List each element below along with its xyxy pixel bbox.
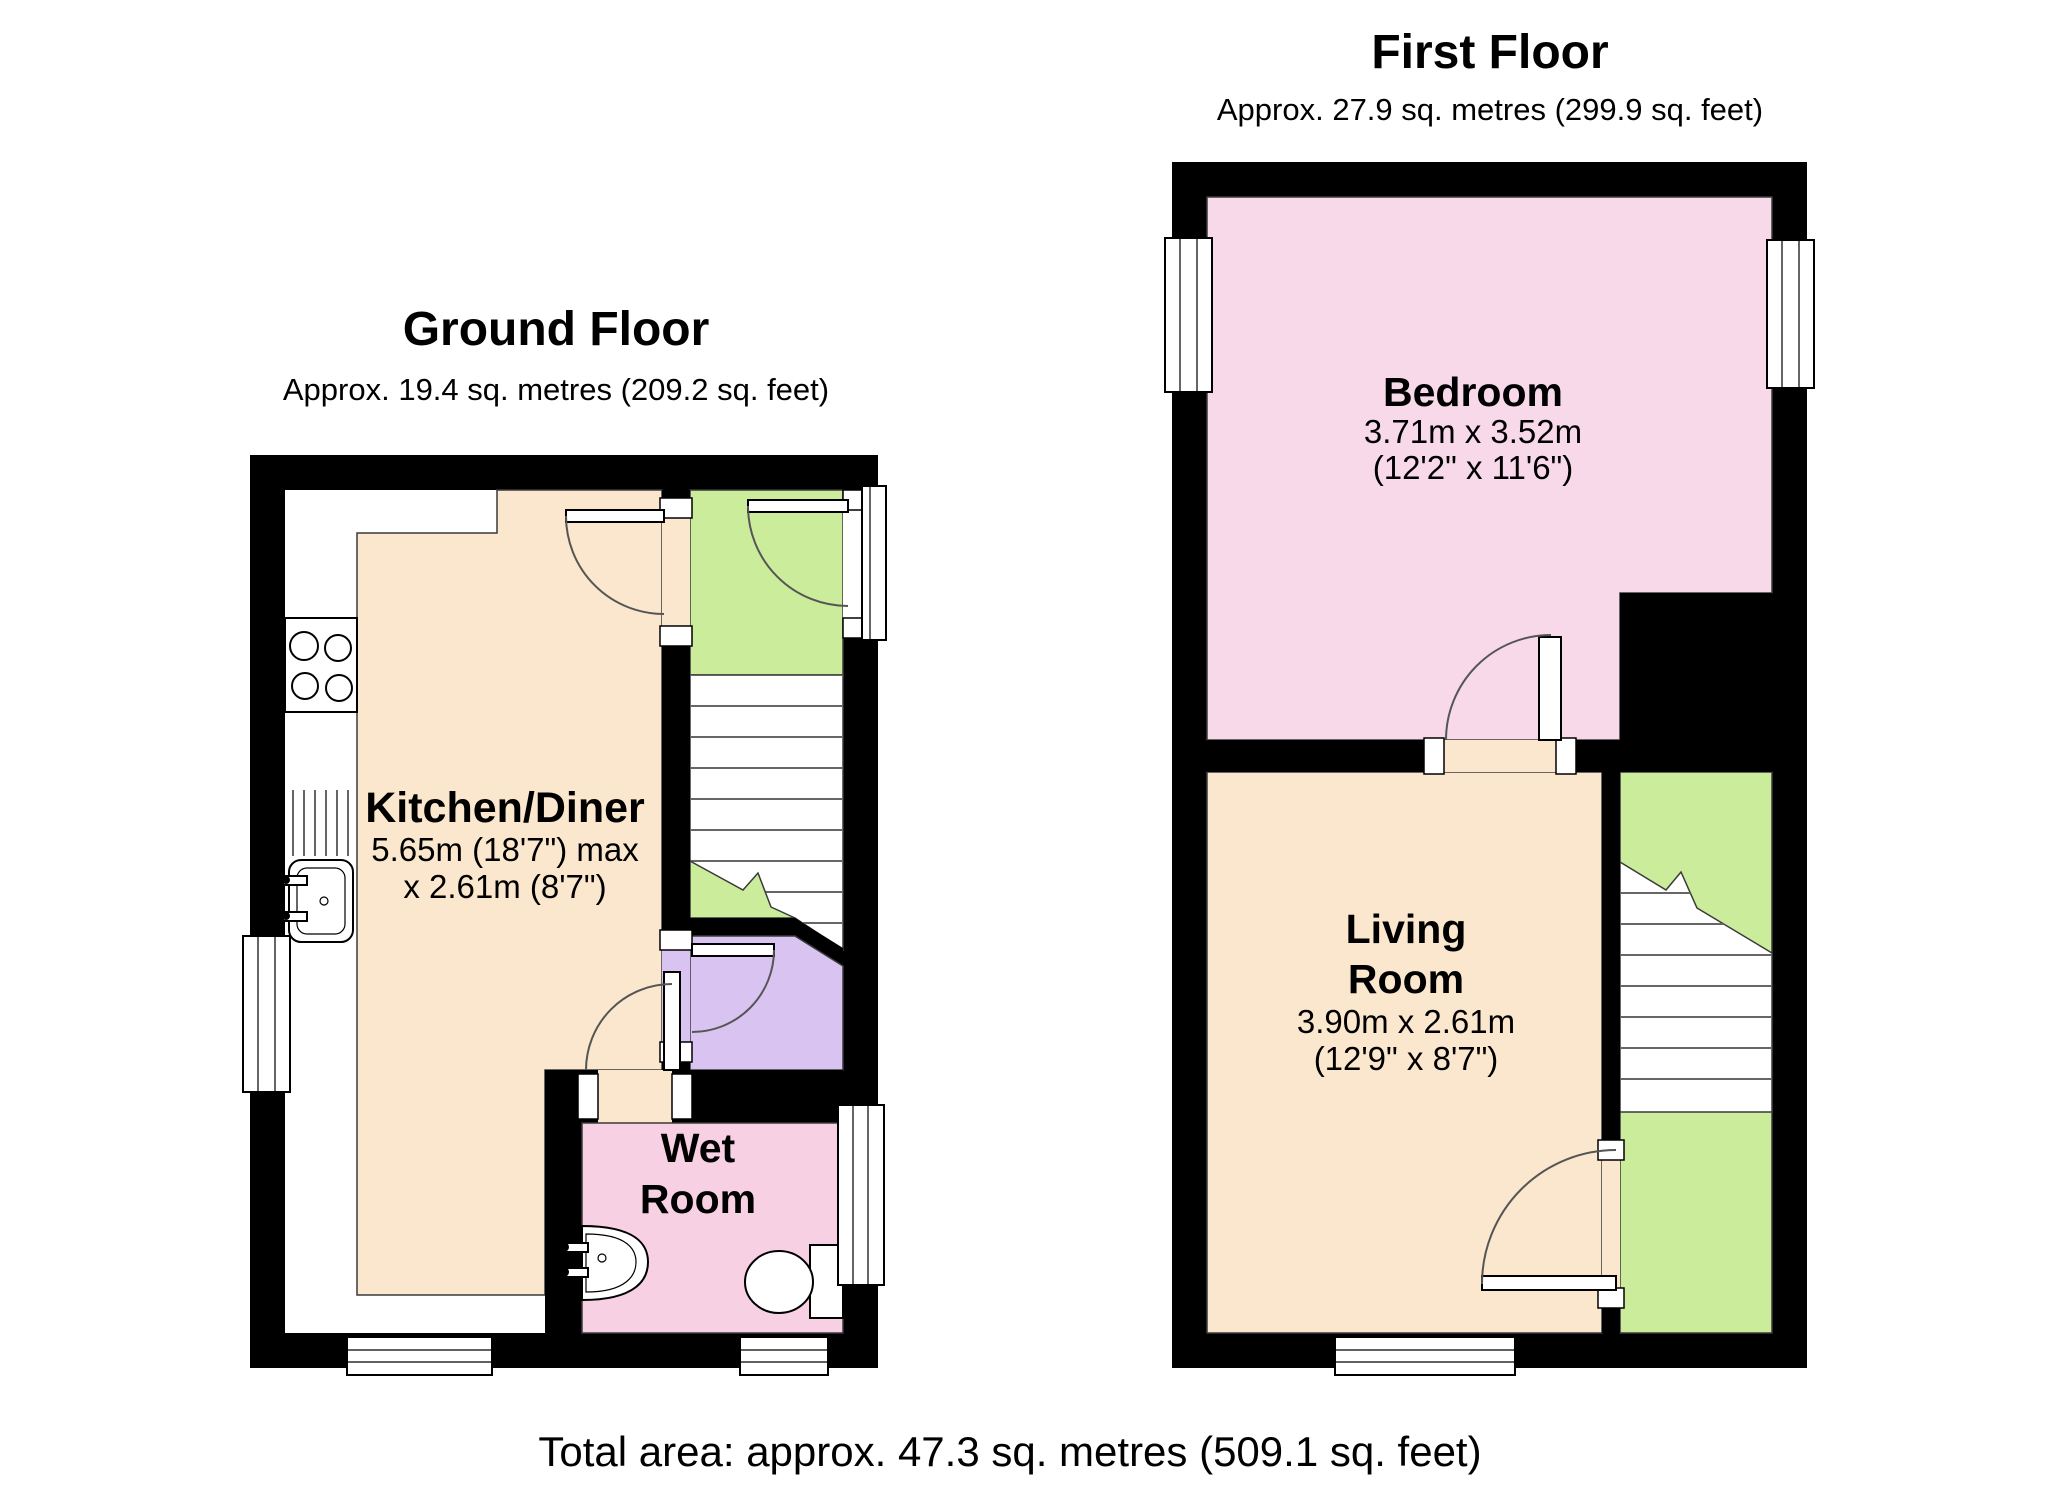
- gf-staircase: [690, 675, 843, 966]
- gf-window-bottom-wetroom: [740, 1337, 828, 1375]
- living-room-label-line2: Room: [1348, 956, 1464, 1002]
- gf-window-bottom-left: [347, 1337, 492, 1375]
- gf-door1-threshold: [662, 518, 690, 626]
- wet-room-label-line1: Wet: [661, 1125, 736, 1171]
- bedroom-dim1: 3.71m x 3.52m: [1364, 413, 1582, 450]
- ff-window-left: [1165, 238, 1212, 392]
- total-area-text: Total area: approx. 47.3 sq. metres (509…: [538, 1428, 1481, 1475]
- entry-hall-floor: [690, 490, 843, 675]
- ff-notch-wall: [1620, 593, 1772, 772]
- kitchen-dim1: 5.65m (18'7") max: [371, 831, 639, 868]
- first-floor-plan: First Floor Approx. 27.9 sq. metres (299…: [1165, 26, 1814, 1375]
- ground-floor-plan: Ground Floor Approx. 19.4 sq. metres (20…: [243, 303, 886, 1375]
- living-room-label-line1: Living: [1346, 906, 1467, 952]
- living-door-threshold: [1602, 1160, 1620, 1288]
- ff-window-right: [1767, 240, 1814, 388]
- ff-window-bottom: [1335, 1337, 1515, 1375]
- hob: [285, 618, 357, 712]
- bedroom-label: Bedroom: [1383, 369, 1563, 415]
- gf-window-right-wetroom: [838, 1105, 884, 1285]
- bedroom-dim2: (12'2" x 11'6"): [1373, 449, 1574, 486]
- kitchen-label: Kitchen/Diner: [365, 784, 645, 832]
- wet-room-door-threshold: [598, 1070, 672, 1123]
- living-room-dim1: 3.90m x 2.61m: [1297, 1003, 1515, 1040]
- floorplan-page: Ground Floor Approx. 19.4 sq. metres (20…: [0, 0, 2048, 1489]
- first-floor-subtitle: Approx. 27.9 sq. metres (299.9 sq. feet): [1217, 92, 1763, 127]
- ground-floor-title: Ground Floor: [403, 303, 710, 356]
- kitchen-sink: [282, 860, 353, 942]
- floorplan-drawing: Ground Floor Approx. 19.4 sq. metres (20…: [0, 0, 2048, 1489]
- first-floor-title: First Floor: [1371, 26, 1608, 79]
- front-door-frame: [862, 486, 886, 640]
- ground-floor-subtitle: Approx. 19.4 sq. metres (209.2 sq. feet): [283, 372, 829, 407]
- toilet: [745, 1245, 843, 1318]
- gf-window-left: [243, 936, 290, 1092]
- wet-room-label-line2: Room: [640, 1176, 756, 1222]
- kitchen-dim2: x 2.61m (8'7"): [403, 868, 606, 905]
- bedroom-door-threshold: [1444, 740, 1556, 772]
- living-room-dim2: (12'9" x 8'7"): [1314, 1040, 1499, 1077]
